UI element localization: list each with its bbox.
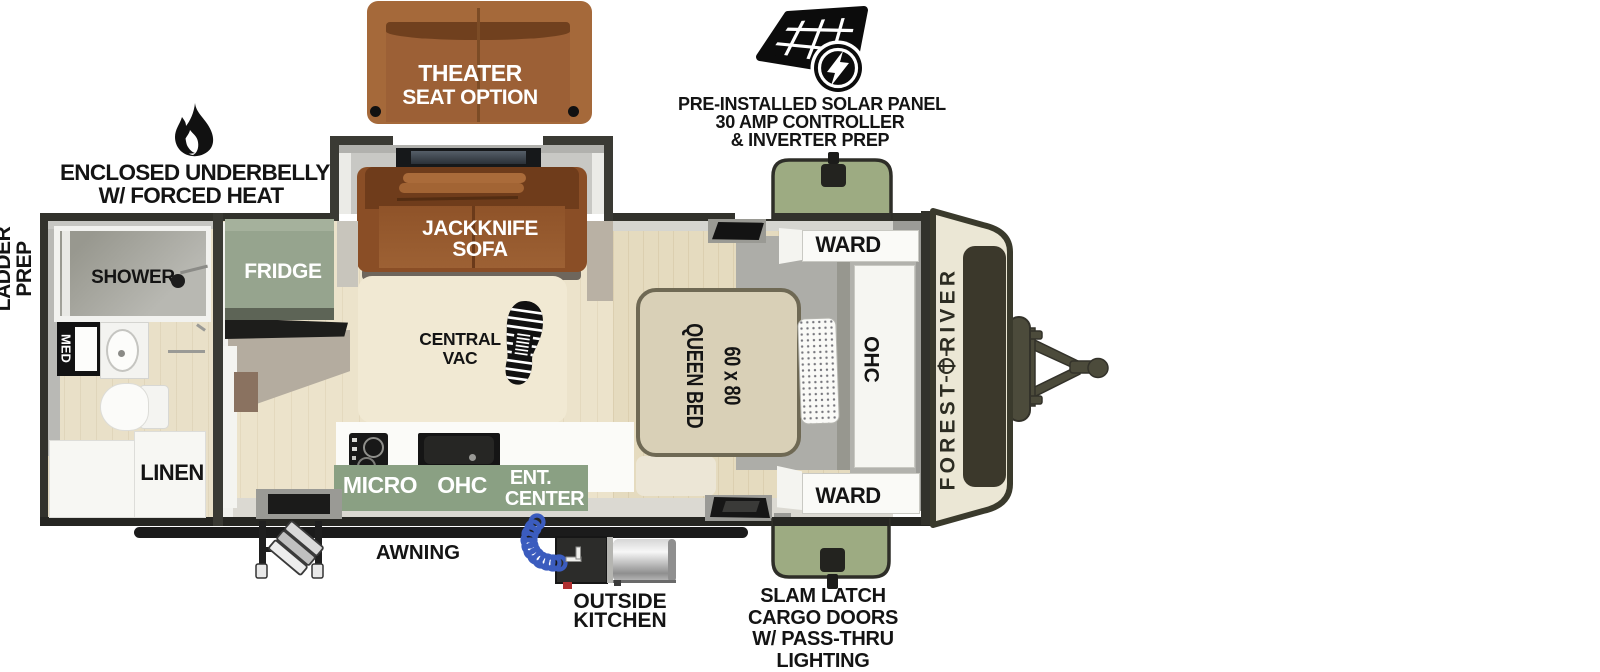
svg-text:FOREST: FOREST: [937, 380, 960, 490]
svg-text:RIVER: RIVER: [937, 267, 960, 352]
